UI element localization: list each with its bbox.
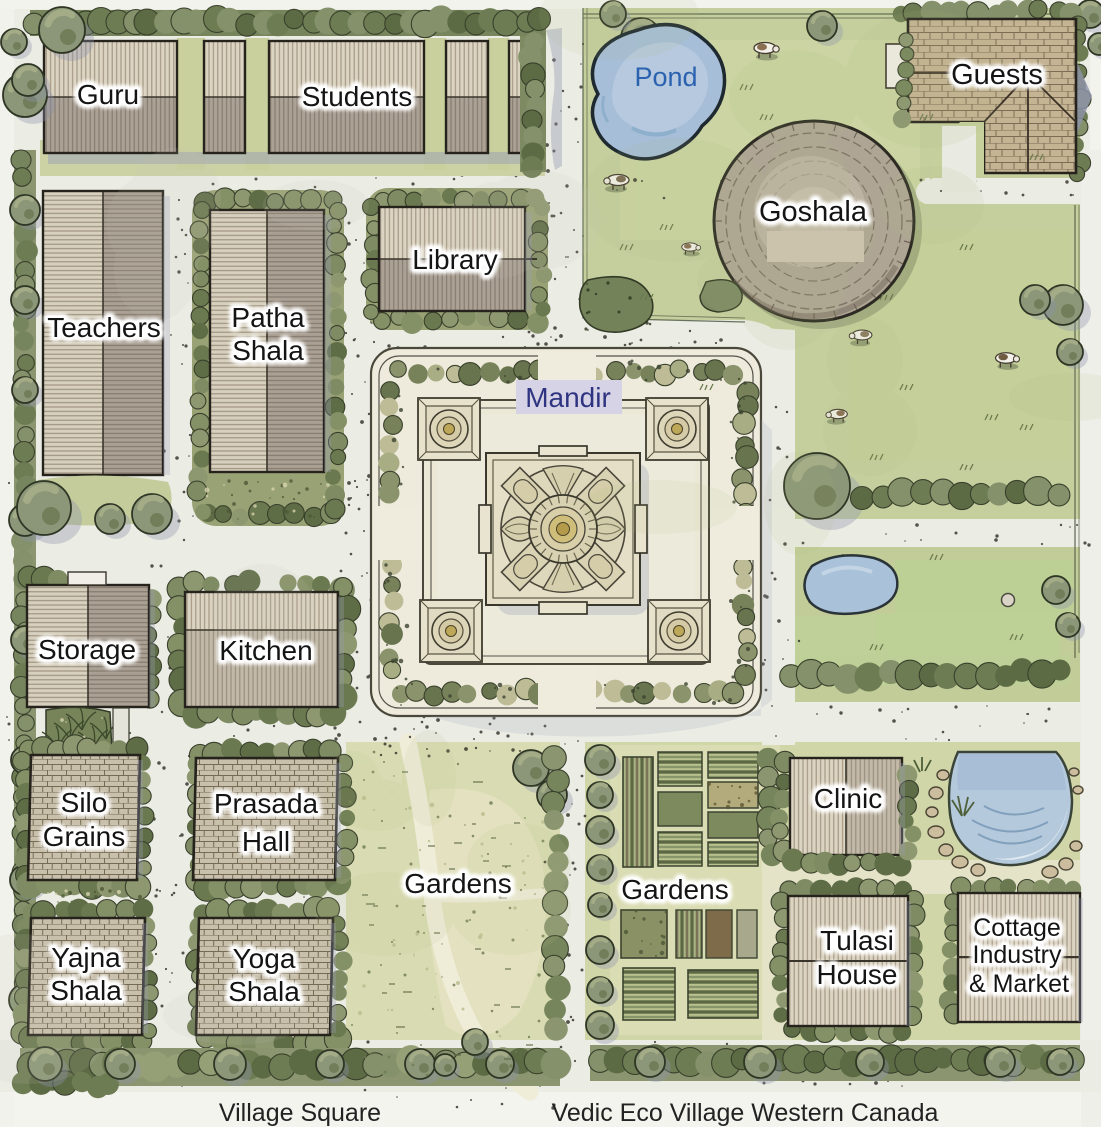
svg-text:Goshala: Goshala (759, 196, 868, 228)
svg-text:Grains: Grains (43, 821, 125, 852)
svg-text:Yoga: Yoga (233, 943, 296, 974)
svg-text:Students: Students (302, 81, 413, 112)
svg-text:Shala: Shala (50, 975, 122, 1006)
svg-text:Gardens: Gardens (621, 874, 728, 905)
svg-text:Shala: Shala (232, 335, 304, 366)
svg-text:Hall: Hall (242, 826, 290, 857)
svg-text:Cottage: Cottage (973, 914, 1061, 942)
svg-text:Patha: Patha (231, 302, 305, 333)
svg-text:Teachers: Teachers (47, 312, 161, 343)
svg-text:Library: Library (412, 244, 498, 275)
svg-text:Shala: Shala (228, 976, 300, 1007)
svg-text:& Market: & Market (969, 970, 1069, 998)
svg-text:Industry: Industry (973, 941, 1062, 969)
svg-text:Silo: Silo (61, 787, 108, 818)
svg-text:House: House (817, 959, 898, 990)
svg-text:Village Square: Village Square (219, 1099, 381, 1127)
svg-text:Gardens: Gardens (404, 868, 511, 899)
svg-text:Yajna: Yajna (51, 942, 121, 973)
svg-text:Tulasi: Tulasi (820, 925, 894, 956)
svg-text:Prasada: Prasada (214, 788, 319, 819)
svg-text:Mandir: Mandir (525, 382, 611, 413)
svg-text:Storage: Storage (38, 634, 136, 665)
svg-text:Guests: Guests (951, 59, 1043, 91)
svg-text:Vedic Eco Village Western Cana: Vedic Eco Village Western Canada (552, 1099, 939, 1127)
svg-text:Pond: Pond (634, 62, 697, 92)
svg-text:Kitchen: Kitchen (219, 635, 312, 666)
svg-text:Clinic: Clinic (814, 783, 882, 814)
svg-text:Guru: Guru (77, 79, 139, 110)
